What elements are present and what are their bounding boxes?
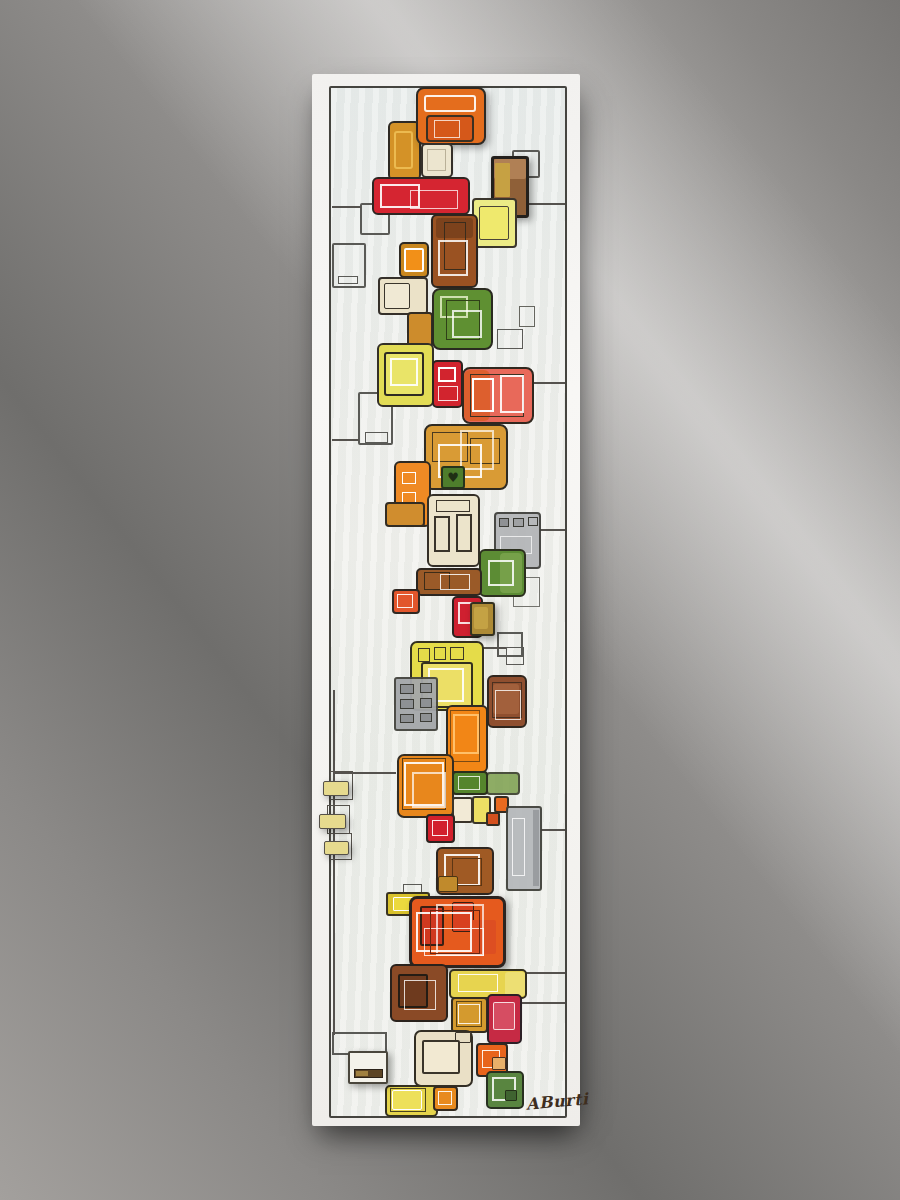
tile-inner-line: [452, 310, 482, 338]
tile-gold-chip: [438, 876, 458, 892]
tile-inner-line: [390, 1088, 426, 1112]
connector-line: [333, 690, 335, 1035]
tile-tab-yellow: [324, 841, 349, 855]
tile-pale-yellow-inner: [479, 206, 509, 240]
tile-inner-line: [453, 714, 479, 754]
outline-sq: [338, 276, 358, 284]
outline-sq: [497, 329, 523, 349]
tile-gray-cell: [420, 698, 432, 708]
tile-inner-line: [488, 560, 514, 586]
tile-gold-foil: [495, 163, 510, 197]
connector-line: [482, 647, 506, 649]
connector-line: [541, 829, 565, 831]
tile-inner-line: [512, 818, 525, 876]
tile-cream-sm: [452, 797, 473, 823]
tile-inner-line: [434, 647, 446, 660]
tile-inner-line: [412, 772, 446, 808]
tile-inner-line: [438, 386, 458, 401]
tile-inner-line: [424, 95, 476, 112]
tile-yellow-light-end: [505, 972, 525, 996]
tile-inner-line: [440, 574, 470, 590]
tile-inner-line: [458, 1004, 480, 1024]
tile-inner-line: [458, 776, 480, 790]
tile-gold-inner: [474, 607, 488, 629]
tile-inner-line: [460, 430, 494, 470]
tile-inner-line: [432, 820, 448, 836]
tile-tan-chip: [492, 1057, 506, 1070]
connector-line: [334, 772, 396, 774]
tile-inner-line: [394, 131, 413, 169]
tile-cream-inner: [384, 283, 410, 309]
tile-green-dark-chip: [505, 1090, 517, 1101]
tile-green-heart: ♥: [441, 466, 465, 489]
tile-white-sq: [348, 1051, 388, 1084]
tile-inner-line: [472, 378, 494, 412]
tile-inner-line: [436, 500, 470, 512]
tile-gray-cell: [499, 518, 509, 527]
tile-inner-line: [438, 1091, 452, 1105]
shapes-layer: ♥: [0, 0, 900, 1200]
outline-sq: [506, 647, 524, 665]
connector-line: [521, 1002, 565, 1004]
tile-crimson-light: [493, 1002, 515, 1030]
tile-inner-line: [500, 375, 524, 413]
tile-orange-deep-sm: [486, 812, 500, 826]
tile-gray-cell: [400, 684, 414, 694]
tile-inner-line: [495, 690, 521, 720]
tile-inner-line: [458, 974, 498, 992]
tile-gray-cell: [513, 518, 524, 527]
tile-inner-line: [427, 149, 446, 171]
tile-orange-core: [404, 248, 424, 272]
tile-inner-line: [390, 358, 418, 386]
tile-green-bar-light: [486, 772, 520, 795]
tile-inner-line: [418, 648, 430, 662]
tile-tab-yellow: [319, 814, 346, 829]
tile-gray-dark-edge: [533, 810, 539, 886]
connector-line: [332, 439, 359, 441]
tile-gray-cell: [528, 517, 538, 526]
tile-inner-line: [450, 647, 464, 660]
tile-inner-line: [434, 516, 450, 552]
tile-inner-line: [397, 594, 413, 608]
connector-line: [526, 972, 565, 974]
connector-line: [532, 382, 565, 384]
tile-inner-line: [456, 514, 472, 552]
tile-inner-line: [434, 120, 460, 138]
outline-sq: [519, 306, 535, 327]
tile-inner-line: [430, 910, 480, 954]
connector-line: [332, 206, 361, 208]
tile-gray-cell: [400, 714, 414, 723]
tile-inner-line: [438, 367, 456, 382]
tile-inner-line: [404, 980, 436, 1010]
tile-gray-cell: [420, 713, 432, 722]
tile-cream-inner-2: [422, 1040, 460, 1074]
tile-inner-line: [402, 472, 416, 484]
tile-inner-line: [410, 190, 458, 209]
connector-line: [540, 529, 565, 531]
tile-gray-cell: [400, 699, 414, 709]
tile-tab-yellow: [323, 781, 349, 796]
outline-sq: [365, 432, 388, 443]
tile-amber-wide: [385, 502, 425, 527]
tile-gray-cell: [420, 683, 432, 693]
tile-gold-glint: [356, 1071, 368, 1076]
tile-inner-line: [438, 240, 468, 276]
photo-backdrop: ♥ ABurti: [0, 0, 900, 1200]
